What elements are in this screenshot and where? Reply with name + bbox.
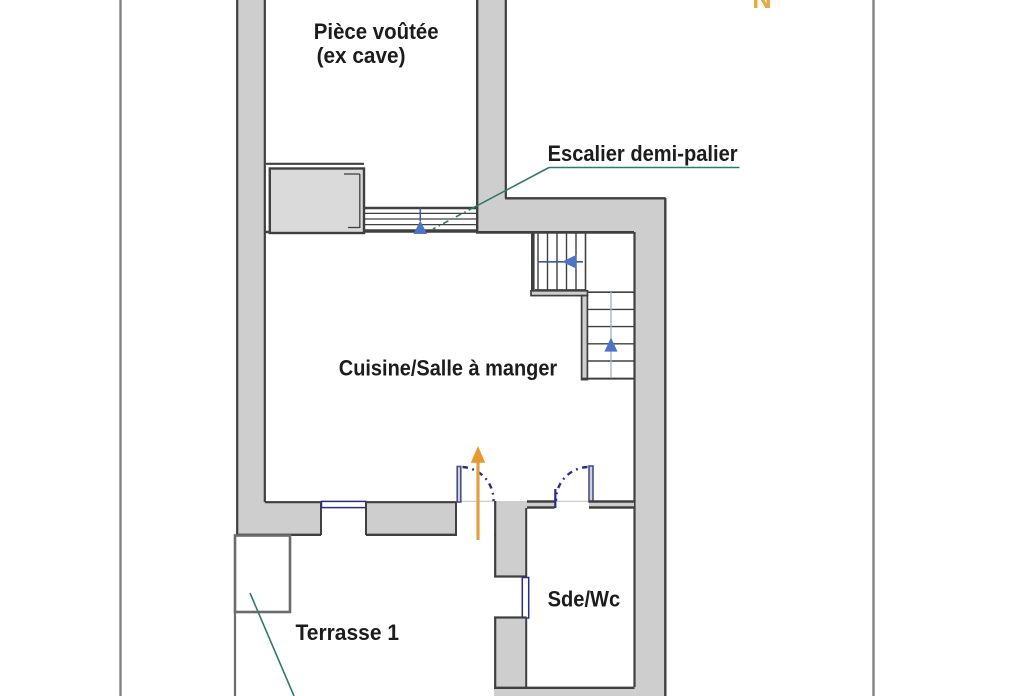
svg-text:(ex cave): (ex cave)	[317, 43, 406, 68]
svg-text:N: N	[752, 0, 772, 14]
svg-text:Cuisine/Salle à manger: Cuisine/Salle à manger	[339, 355, 558, 380]
svg-text:Escalier demi-palier: Escalier demi-palier	[548, 141, 738, 166]
svg-text:Pièce voûtée: Pièce voûtée	[314, 19, 439, 44]
svg-text:Sde/Wc: Sde/Wc	[548, 587, 621, 612]
svg-text:Terrasse 1: Terrasse 1	[296, 620, 400, 645]
